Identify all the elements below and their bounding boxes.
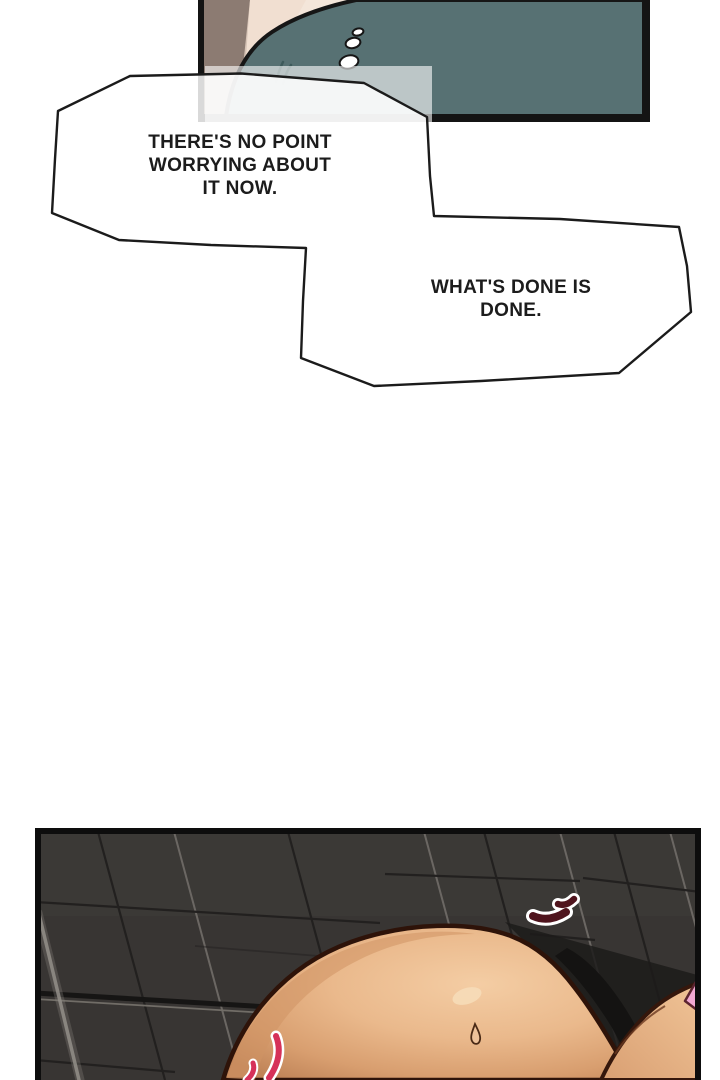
speech-bubble-2-text: WHAT'S DONE IS DONE. <box>401 276 621 322</box>
tile-wall-upper-light <box>35 828 701 916</box>
bottom-panel <box>35 828 701 1080</box>
bubble2-line2: DONE. <box>401 299 621 322</box>
bubble1-line2: WORRYING ABOUT <box>130 154 350 177</box>
speech-bubble-1-text: THERE'S NO POINT WORRYING ABOUT IT NOW. <box>130 131 350 200</box>
bubble1-line1: THERE'S NO POINT <box>130 131 350 154</box>
comic-page: THERE'S NO POINT WORRYING ABOUT IT NOW. … <box>0 0 720 1080</box>
speech-bubble-group <box>0 55 720 400</box>
speech-bubble-outline <box>52 74 691 387</box>
bubble2-line1: WHAT'S DONE IS <box>401 276 621 299</box>
bubble1-line3: IT NOW. <box>130 177 350 200</box>
